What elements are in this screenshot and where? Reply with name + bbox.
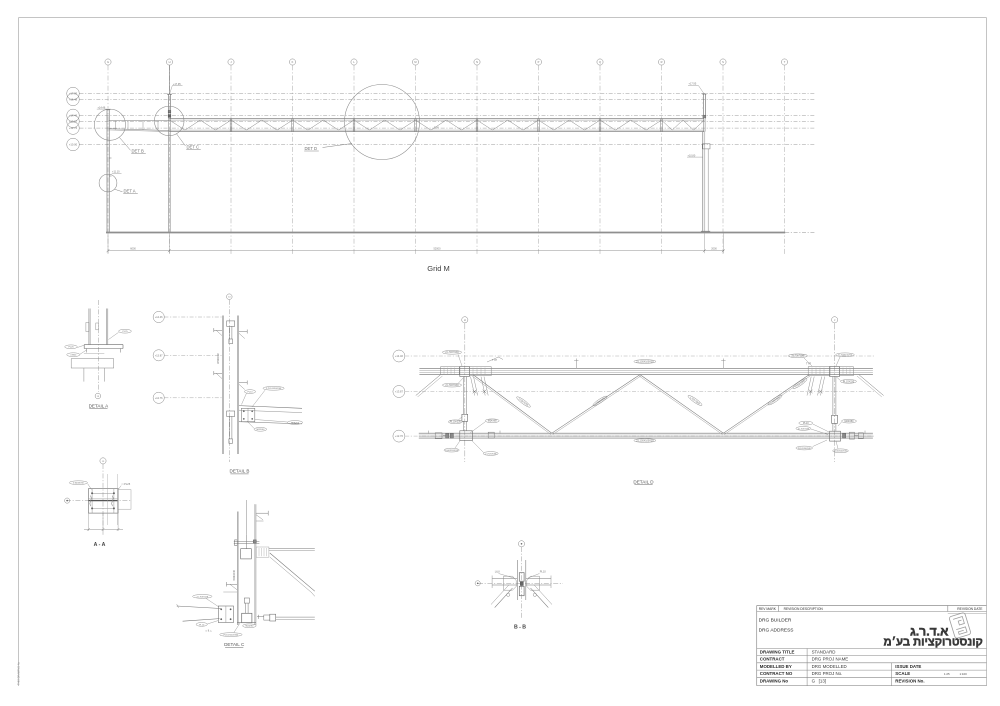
svg-text:DET C: DET C <box>187 144 200 149</box>
svg-text:DRG BUILDER: DRG BUILDER <box>759 617 792 623</box>
svg-text:DETAIL D: DETAIL D <box>633 479 654 484</box>
svg-text:DETAIL A: DETAIL A <box>89 403 110 408</box>
svg-text:DET A: DET A <box>124 188 136 193</box>
svg-text:H: H <box>169 60 171 64</box>
svg-text:PL25: PL25 <box>68 347 74 349</box>
svg-text:DETAIL C: DETAIL C <box>224 642 245 647</box>
svg-text:B - B: B - B <box>514 624 526 630</box>
svg-text:+14.46: +14.46 <box>155 316 163 319</box>
svg-text:DRG PROJ NAME: DRG PROJ NAME <box>812 657 849 662</box>
svg-text:+10.80: +10.80 <box>688 154 696 157</box>
svg-text:+12.76: +12.76 <box>155 397 163 400</box>
svg-text:L&U: L&U <box>495 570 500 574</box>
svg-text:1:25: 1:25 <box>944 672 950 676</box>
svg-text:6000: 6000 <box>130 248 136 251</box>
svg-text:4 M24: 4 M24 <box>70 355 77 357</box>
svg-text:L100X100X10: L100X100X10 <box>445 450 459 452</box>
svg-text:+17.95: +17.95 <box>689 83 697 86</box>
svg-text:SCALE: SCALE <box>895 671 910 676</box>
svg-text:+14.46: +14.46 <box>395 354 404 358</box>
svg-text:+17.95: +17.95 <box>173 83 181 86</box>
svg-text:□ 8 △: □ 8 △ <box>206 630 213 633</box>
svg-text:PL10: PL10 <box>199 624 205 626</box>
svg-text:CONTRACT NO: CONTRACT NO <box>760 671 793 676</box>
svg-text:L100X100X10: L100X100X10 <box>834 451 848 453</box>
svg-text:קונסטרוקציות בע׳מ: קונסטרוקציות בע׳מ <box>884 636 983 649</box>
svg-text:THIS DRAWING No: THIS DRAWING No <box>17 661 21 685</box>
svg-text:+16.48: +16.48 <box>69 97 78 101</box>
svg-text:REVISION DATE: REVISION DATE <box>957 607 983 611</box>
svg-text:PL25: PL25 <box>122 331 128 333</box>
svg-text:2 L70X70X8: 2 L70X70X8 <box>798 428 810 430</box>
svg-text:DRG ADDRESS: DRG ADDRESS <box>759 627 794 633</box>
svg-text:M24X80: M24X80 <box>246 626 255 628</box>
svg-text:PL10X220: PL10X220 <box>450 421 462 424</box>
svg-text:2 L100X100X10: 2 L100X100X10 <box>636 360 654 363</box>
svg-text:G: G <box>107 60 109 64</box>
svg-text:PL10: PL10 <box>803 422 809 425</box>
svg-text:ISSUE DATE: ISSUE DATE <box>895 664 921 669</box>
svg-text:STANDARD: STANDARD <box>812 650 836 655</box>
svg-text:K: K <box>292 60 294 64</box>
svg-text:REVISION No.: REVISION No. <box>895 679 924 684</box>
svg-text:DET D: DET D <box>305 146 318 151</box>
svg-text:PL10X220X340: PL10X220X340 <box>224 635 239 637</box>
svg-text:2 L70X70X8: 2 L70X70X8 <box>197 596 209 598</box>
svg-text:W360X39: W360X39 <box>217 353 220 364</box>
svg-text:2 L70X70X8: 2 L70X70X8 <box>485 453 497 455</box>
svg-text:REVISION DESCRIPTION: REVISION DESCRIPTION <box>784 607 824 611</box>
svg-text:1:100: 1:100 <box>960 672 968 676</box>
svg-text:R: R <box>661 60 663 64</box>
svg-text:2 L70X70X8: 2 L70X70X8 <box>445 384 459 387</box>
svg-text:M24X80: M24X80 <box>845 420 855 423</box>
svg-text:4 M24X700: 4 M24X700 <box>73 483 84 485</box>
svg-text:N: N <box>476 60 478 64</box>
svg-text:+13.87: +13.87 <box>155 354 163 357</box>
svg-text:+13.87: +13.87 <box>395 390 404 394</box>
svg-text:2 L100X100X10: 2 L100X100X10 <box>838 355 853 357</box>
svg-text:+12.76: +12.76 <box>395 434 404 438</box>
svg-text:H: H <box>464 318 466 322</box>
svg-text:Q: Q <box>599 60 601 64</box>
svg-text:A - A: A - A <box>94 542 106 548</box>
svg-text:PL10: PL10 <box>540 570 547 574</box>
svg-text:REV MARK: REV MARK <box>759 607 777 611</box>
svg-text:3 W: 3 W <box>434 126 439 130</box>
svg-text:2 L70X70X8: 2 L70X70X8 <box>791 355 805 358</box>
svg-text:□ PL25: □ PL25 <box>122 482 131 486</box>
svg-text:M20X60: M20X60 <box>257 429 266 431</box>
svg-text:G [13]: G [13] <box>812 679 826 684</box>
svg-text:MODELLED BY: MODELLED BY <box>760 664 792 669</box>
svg-text:P: P <box>538 60 540 64</box>
svg-text:PL10: PL10 <box>247 392 253 394</box>
svg-text:2000: 2000 <box>711 248 717 251</box>
svg-text:DRAWING No: DRAWING No <box>760 679 789 684</box>
svg-text:2 PL10X90X240: 2 PL10X90X240 <box>266 388 282 390</box>
svg-text:PL10X90X240: PL10X90X240 <box>798 448 812 450</box>
svg-text:DRAWING TITLE: DRAWING TITLE <box>760 650 795 655</box>
svg-text:Grid M: Grid M <box>427 264 450 273</box>
svg-text:CONTRACT: CONTRACT <box>760 657 785 662</box>
svg-text:+12.76: +12.76 <box>69 126 78 130</box>
svg-text:TYP: TYP <box>806 362 811 366</box>
svg-text:S: S <box>722 60 724 64</box>
svg-text:DRG PROJ No.: DRG PROJ No. <box>812 671 843 676</box>
svg-text:DETAIL B: DETAIL B <box>230 469 250 474</box>
svg-text:PL10X220: PL10X220 <box>843 380 855 383</box>
svg-text:DET B: DET B <box>132 149 144 154</box>
svg-text:HEA200: HEA200 <box>291 421 300 424</box>
svg-text:DRG MODELLED: DRG MODELLED <box>812 664 847 669</box>
svg-text:M: M <box>414 60 416 64</box>
svg-text:2 L70X70X8: 2 L70X70X8 <box>445 351 459 354</box>
svg-text:52000: 52000 <box>434 248 442 251</box>
svg-text:+10.00: +10.00 <box>69 143 78 147</box>
svg-text:2 L100X100X10: 2 L100X100X10 <box>636 439 654 442</box>
svg-text:W360X39: W360X39 <box>233 569 236 580</box>
svg-text:M24X80: M24X80 <box>488 420 498 423</box>
